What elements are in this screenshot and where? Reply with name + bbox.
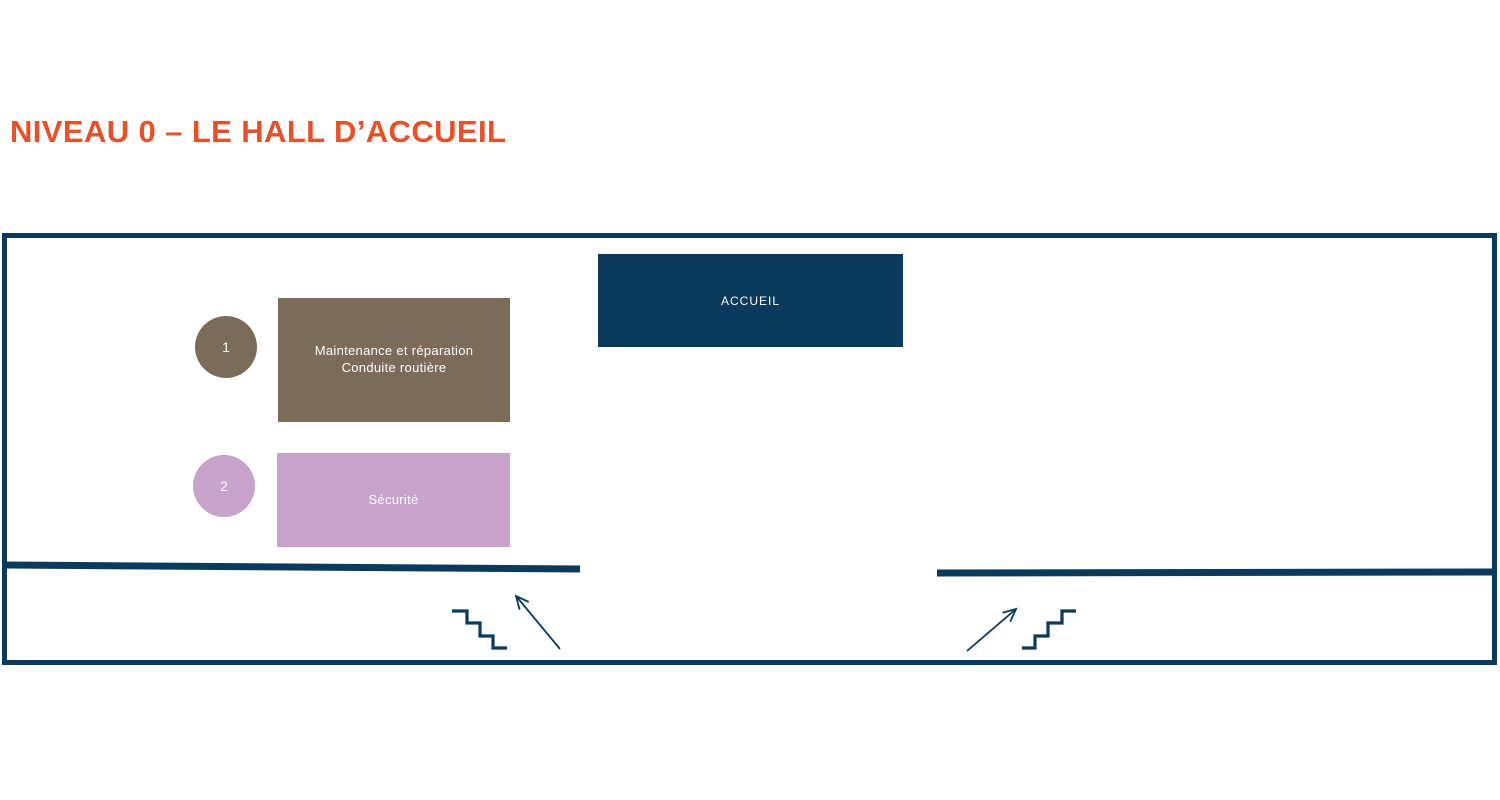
page: NIVEAU 0 – LE HALL D’ACCUEIL ACCUEIL 1 M… (0, 0, 1500, 800)
floorplan: ACCUEIL 1 Maintenance et réparation Cond… (2, 233, 1497, 665)
stairs-descending-icon (452, 611, 507, 648)
page-title: NIVEAU 0 – LE HALL D’ACCUEIL (10, 113, 506, 152)
plan-lines (7, 238, 1492, 660)
stairs-ascending-icon (1022, 611, 1076, 648)
arrow-up-left-icon (516, 596, 560, 649)
arrow-up-right-icon (967, 609, 1016, 651)
wall-lower-left (7, 565, 580, 569)
wall-lower-right (937, 572, 1492, 573)
